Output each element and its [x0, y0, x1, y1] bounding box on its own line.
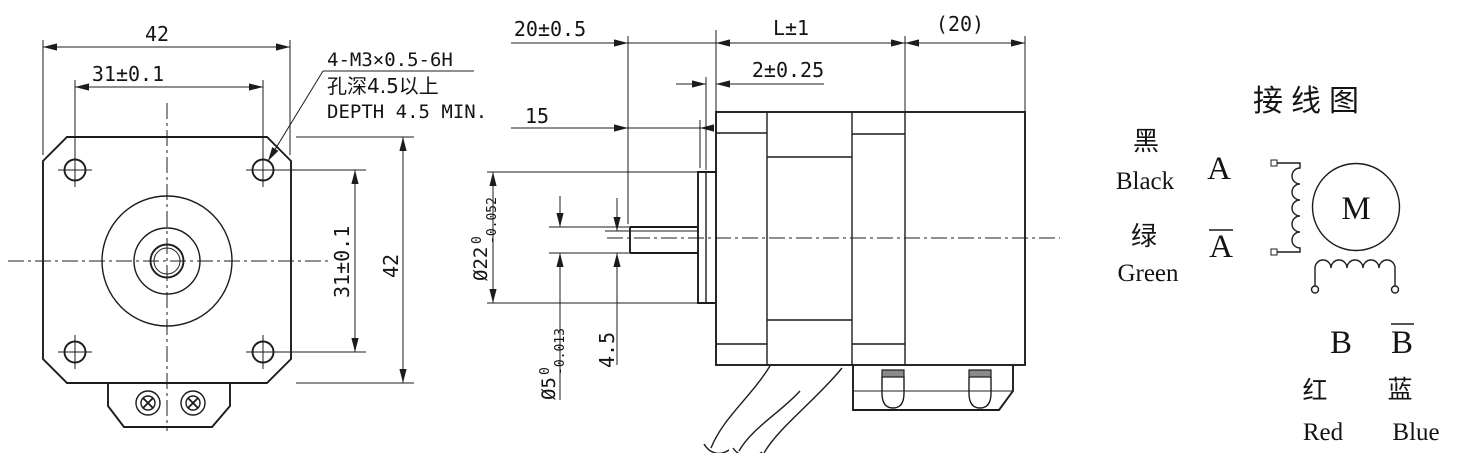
lead-a-cn-label: 黑 — [1133, 127, 1159, 157]
terminal-a-bar-dot — [1271, 249, 1277, 255]
dim-shaft-dia-tol-sup: 0 — [538, 367, 553, 375]
phase-b-coil — [1312, 260, 1399, 293]
lead-a-en-label: Black — [1116, 168, 1175, 195]
callout-depth-en-label: DEPTH 4.5 MIN. — [327, 101, 487, 123]
shaft — [630, 227, 698, 253]
thread-callout: 4-M3×0.5-6H 孔深4.5以上 DEPTH 4.5 MIN. — [268, 49, 487, 161]
front-connector-block — [108, 383, 230, 427]
connector-screw-right — [181, 391, 205, 415]
dim-boss-dia-label: Ø22 — [470, 247, 492, 281]
motor-symbol-label: M — [1341, 191, 1370, 227]
front-view: 42 31±0.1 31±0.1 42 — [8, 22, 487, 431]
drawing-canvas: 42 31±0.1 31±0.1 42 — [0, 0, 1465, 453]
terminal-b-bar-dot — [1392, 286, 1399, 293]
dim-front-hole-spacing: 31±0.1 — [75, 62, 263, 156]
dim-front-width-label: 42 — [145, 22, 169, 46]
lead-b-bar-cn-label: 蓝 — [1387, 375, 1412, 404]
connector-screw-left — [136, 391, 160, 415]
dim-flat-length: 15 — [511, 104, 714, 168]
wiring-title: 接线图 — [1253, 84, 1367, 119]
dim-rear-cover-label: (20) — [936, 12, 984, 36]
side-view: 20±0.5 L±1 (20) 2±0.25 15 Ø22 0 — [470, 12, 1060, 453]
wiring-diagram: 接线图 黑 Black A 绿 Green A M B B 红 蓝 Red — [1116, 84, 1440, 446]
dim-shaft-dia: Ø5 0 -0.013 — [538, 196, 630, 400]
phase-a-bar-label: A — [1209, 229, 1233, 265]
lead-b-bar-en-label: Blue — [1392, 419, 1439, 446]
dim-side-top: 20±0.5 L±1 (20) — [511, 12, 1025, 224]
dim-shaft-dia-label: Ø5 — [538, 377, 560, 400]
dim-flat-depth-label: 4.5 — [595, 332, 619, 368]
lead-wires — [704, 366, 842, 453]
phase-a-label: A — [1207, 151, 1231, 187]
terminal-left — [882, 370, 904, 408]
dim-front-hole-spacing-label: 31±0.1 — [92, 62, 164, 86]
dim-shaft-dia-tol-sub: -0.013 — [553, 328, 568, 375]
dim-front-hole-spacing-v-label: 31±0.1 — [330, 226, 354, 298]
phase-b-bar-label: B — [1391, 325, 1413, 361]
dim-shaft-ext-label: 20±0.5 — [514, 17, 586, 41]
dim-body-len-label: L±1 — [773, 16, 809, 40]
callout-thread-label: 4-M3×0.5-6H — [327, 49, 453, 71]
callout-depth-cn-label: 孔深4.5以上 — [327, 74, 439, 98]
dim-flat-len-label: 15 — [525, 104, 549, 128]
phase-a-coil — [1271, 160, 1300, 255]
dim-boss-dia-tol-sub: -0.052 — [485, 197, 500, 244]
dim-flat-depth: 4.5 — [595, 198, 630, 368]
terminal-right — [969, 370, 991, 408]
dim-boss-height: 2±0.25 — [676, 58, 824, 170]
rear-connector-block — [853, 365, 1013, 410]
terminal-b-dot — [1312, 286, 1319, 293]
lead-a-bar-en-label: Green — [1117, 260, 1179, 287]
phase-b-label: B — [1330, 325, 1352, 361]
dim-front-height-label: 42 — [379, 254, 403, 278]
dim-boss-dia-tol-sup: 0 — [470, 236, 485, 244]
lead-b-cn-label: 红 — [1302, 376, 1327, 405]
lead-a-bar-cn-label: 绿 — [1131, 222, 1157, 252]
terminal-a-dot — [1271, 160, 1277, 166]
engineering-drawing: 42 31±0.1 31±0.1 42 — [0, 0, 1465, 453]
lead-b-en-label: Red — [1303, 419, 1344, 446]
dim-boss-height-label: 2±0.25 — [752, 58, 824, 82]
